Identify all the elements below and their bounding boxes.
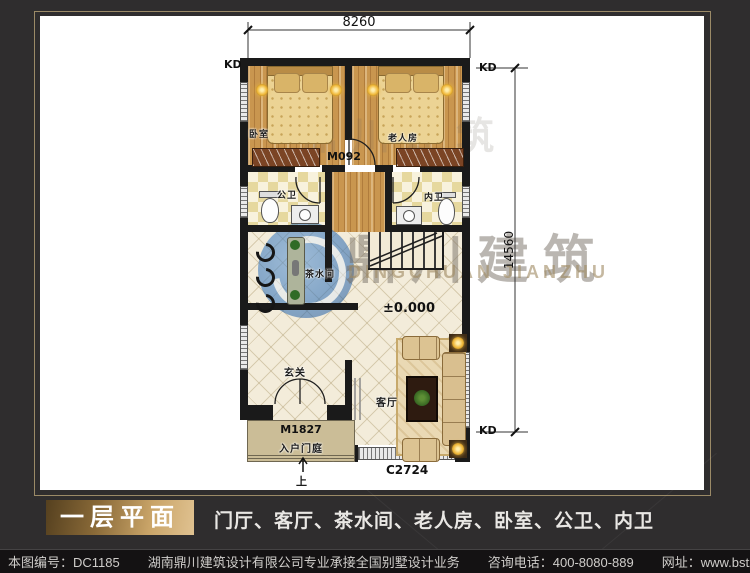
room-label-bedroom: 卧室 xyxy=(249,127,269,140)
door-arc-public-bath xyxy=(296,177,320,203)
page: 鼎川建筑 鼎川建筑 DINGCHUAN JIANZHU xyxy=(0,0,750,573)
entry-arrow xyxy=(299,458,307,472)
door-arc-m1827-right xyxy=(300,379,325,404)
room-label-public-bath: 公卫 xyxy=(277,188,297,201)
level-label: ±0.000 xyxy=(383,301,435,316)
dimension-right: 14560 xyxy=(502,231,516,269)
window-label-c2724: C2724 xyxy=(386,463,428,477)
door-arc-inner-bath xyxy=(393,177,419,203)
room-label-tea-room: 茶水间 xyxy=(305,267,335,280)
door-label-m1827: M1827 xyxy=(247,423,355,436)
wall-niche-lines xyxy=(355,378,360,420)
footer-company: 湖南鼎川建筑设计有限公司专业承接全国别墅设计业务 xyxy=(148,552,460,571)
door-arc-m1827-left xyxy=(275,379,300,404)
plan-annotations-overlay xyxy=(0,0,750,573)
room-label-elder-room: 老人房 xyxy=(388,131,418,144)
room-list-text: 门厅、客厅、茶水间、老人房、卧室、公卫、内卫 xyxy=(214,506,654,533)
room-label-living-room: 客厅 xyxy=(376,394,398,409)
room-label-foyer: 玄关 xyxy=(284,364,306,379)
footer-bar: 本图编号：DC1185 湖南鼎川建筑设计有限公司专业承接全国别墅设计业务 咨询电… xyxy=(0,549,750,573)
footer-phone: 咨询电话：400-8080-889 xyxy=(488,552,634,571)
dimension-top: 8260 xyxy=(248,15,470,30)
kd-label-bottom-right: KD xyxy=(479,424,497,437)
kd-label-top-left: KD xyxy=(224,58,242,71)
kd-label-top-right: KD xyxy=(479,61,497,74)
footer-drawing-number: 本图编号：DC1185 xyxy=(8,552,120,571)
up-label: 上 xyxy=(296,473,308,489)
room-label-inner-bath: 内卫 xyxy=(424,190,444,203)
floor-title-badge: 一层平面 xyxy=(46,500,194,535)
room-label-entry-porch: 入户门庭 xyxy=(247,440,355,455)
door-label-m092: M092 xyxy=(327,150,361,163)
footer-website: 网址：www.bstzcs.com xyxy=(662,552,750,571)
stair-break-lines xyxy=(370,233,442,266)
